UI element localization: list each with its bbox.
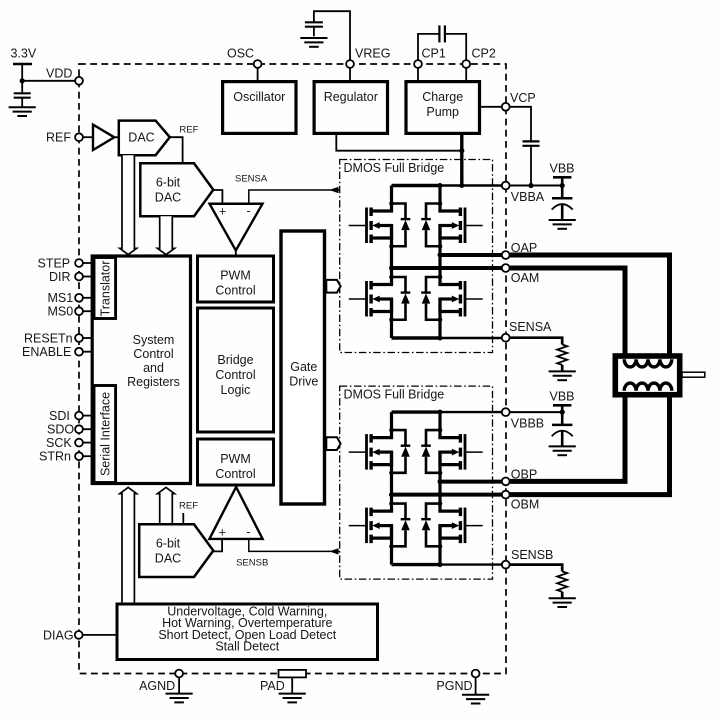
svg-text:SDI: SDI: [49, 409, 70, 423]
svg-text:Regulator: Regulator: [324, 90, 378, 104]
svg-text:Control: Control: [215, 368, 255, 382]
svg-text:SENSB: SENSB: [511, 548, 553, 562]
svg-text:SCK: SCK: [46, 436, 72, 450]
svg-text:VDD: VDD: [46, 67, 72, 81]
svg-text:OSC: OSC: [227, 47, 254, 61]
svg-text:PWM: PWM: [220, 452, 251, 466]
svg-text:PWM: PWM: [220, 269, 251, 283]
svg-text:SDO: SDO: [47, 423, 74, 437]
svg-text:RESETn: RESETn: [24, 332, 73, 346]
svg-text:Oscillator: Oscillator: [233, 90, 285, 104]
svg-text:DAC: DAC: [155, 552, 181, 566]
svg-text:Charge: Charge: [422, 90, 463, 104]
svg-text:MS1: MS1: [48, 291, 74, 305]
svg-text:Drive: Drive: [289, 375, 318, 389]
svg-text:DAC: DAC: [128, 131, 154, 145]
svg-text:PAD: PAD: [260, 679, 285, 693]
svg-text:ENABLE: ENABLE: [22, 345, 71, 359]
svg-text:AGND: AGND: [139, 679, 175, 693]
svg-text:Stall Detect: Stall Detect: [215, 640, 279, 654]
svg-text:OAM: OAM: [511, 271, 539, 285]
svg-text:Bridge: Bridge: [217, 353, 253, 367]
svg-text:CP2: CP2: [472, 47, 496, 61]
svg-text:+: +: [219, 205, 226, 219]
svg-text:Logic: Logic: [221, 383, 251, 397]
svg-text:VCP: VCP: [510, 91, 536, 105]
svg-text:Gate: Gate: [290, 360, 317, 374]
svg-text:Control: Control: [215, 284, 255, 298]
svg-text:3.3V: 3.3V: [11, 47, 37, 61]
svg-text:-: -: [246, 525, 250, 539]
svg-text:and: and: [143, 361, 164, 375]
svg-text:Translator: Translator: [99, 261, 113, 317]
svg-text:REF: REF: [46, 131, 71, 145]
svg-text:VREG: VREG: [355, 47, 390, 61]
svg-text:VBBA: VBBA: [511, 190, 545, 204]
svg-text:CP1: CP1: [422, 47, 446, 61]
svg-text:STRn: STRn: [39, 450, 71, 464]
svg-text:SENSA: SENSA: [509, 320, 552, 334]
svg-text:DIR: DIR: [49, 270, 71, 284]
svg-text:MS0: MS0: [48, 305, 74, 319]
svg-text:OBM: OBM: [511, 498, 539, 512]
svg-text:SENSA: SENSA: [235, 174, 268, 185]
svg-text:VBBB: VBBB: [511, 417, 544, 431]
svg-text:6-bit: 6-bit: [156, 537, 181, 551]
svg-text:VBB: VBB: [550, 162, 575, 176]
svg-text:DIAG: DIAG: [43, 628, 74, 642]
svg-text:Registers: Registers: [127, 375, 180, 389]
svg-text:STEP: STEP: [38, 256, 71, 270]
svg-text:Serial Interface: Serial Interface: [99, 392, 113, 476]
svg-text:REF: REF: [179, 125, 198, 136]
svg-text:DAC: DAC: [155, 191, 181, 205]
svg-text:VBB: VBB: [550, 390, 575, 404]
svg-text:Control: Control: [215, 467, 255, 481]
svg-text:Pump: Pump: [426, 105, 459, 119]
svg-text:6-bit: 6-bit: [156, 176, 181, 190]
svg-text:-: -: [247, 204, 251, 218]
svg-text:System: System: [133, 333, 175, 347]
svg-text:Control: Control: [133, 347, 173, 361]
svg-text:+: +: [219, 526, 226, 540]
svg-text:SENSB: SENSB: [236, 558, 268, 569]
svg-text:REF: REF: [179, 501, 198, 512]
svg-text:PGND: PGND: [436, 679, 472, 693]
